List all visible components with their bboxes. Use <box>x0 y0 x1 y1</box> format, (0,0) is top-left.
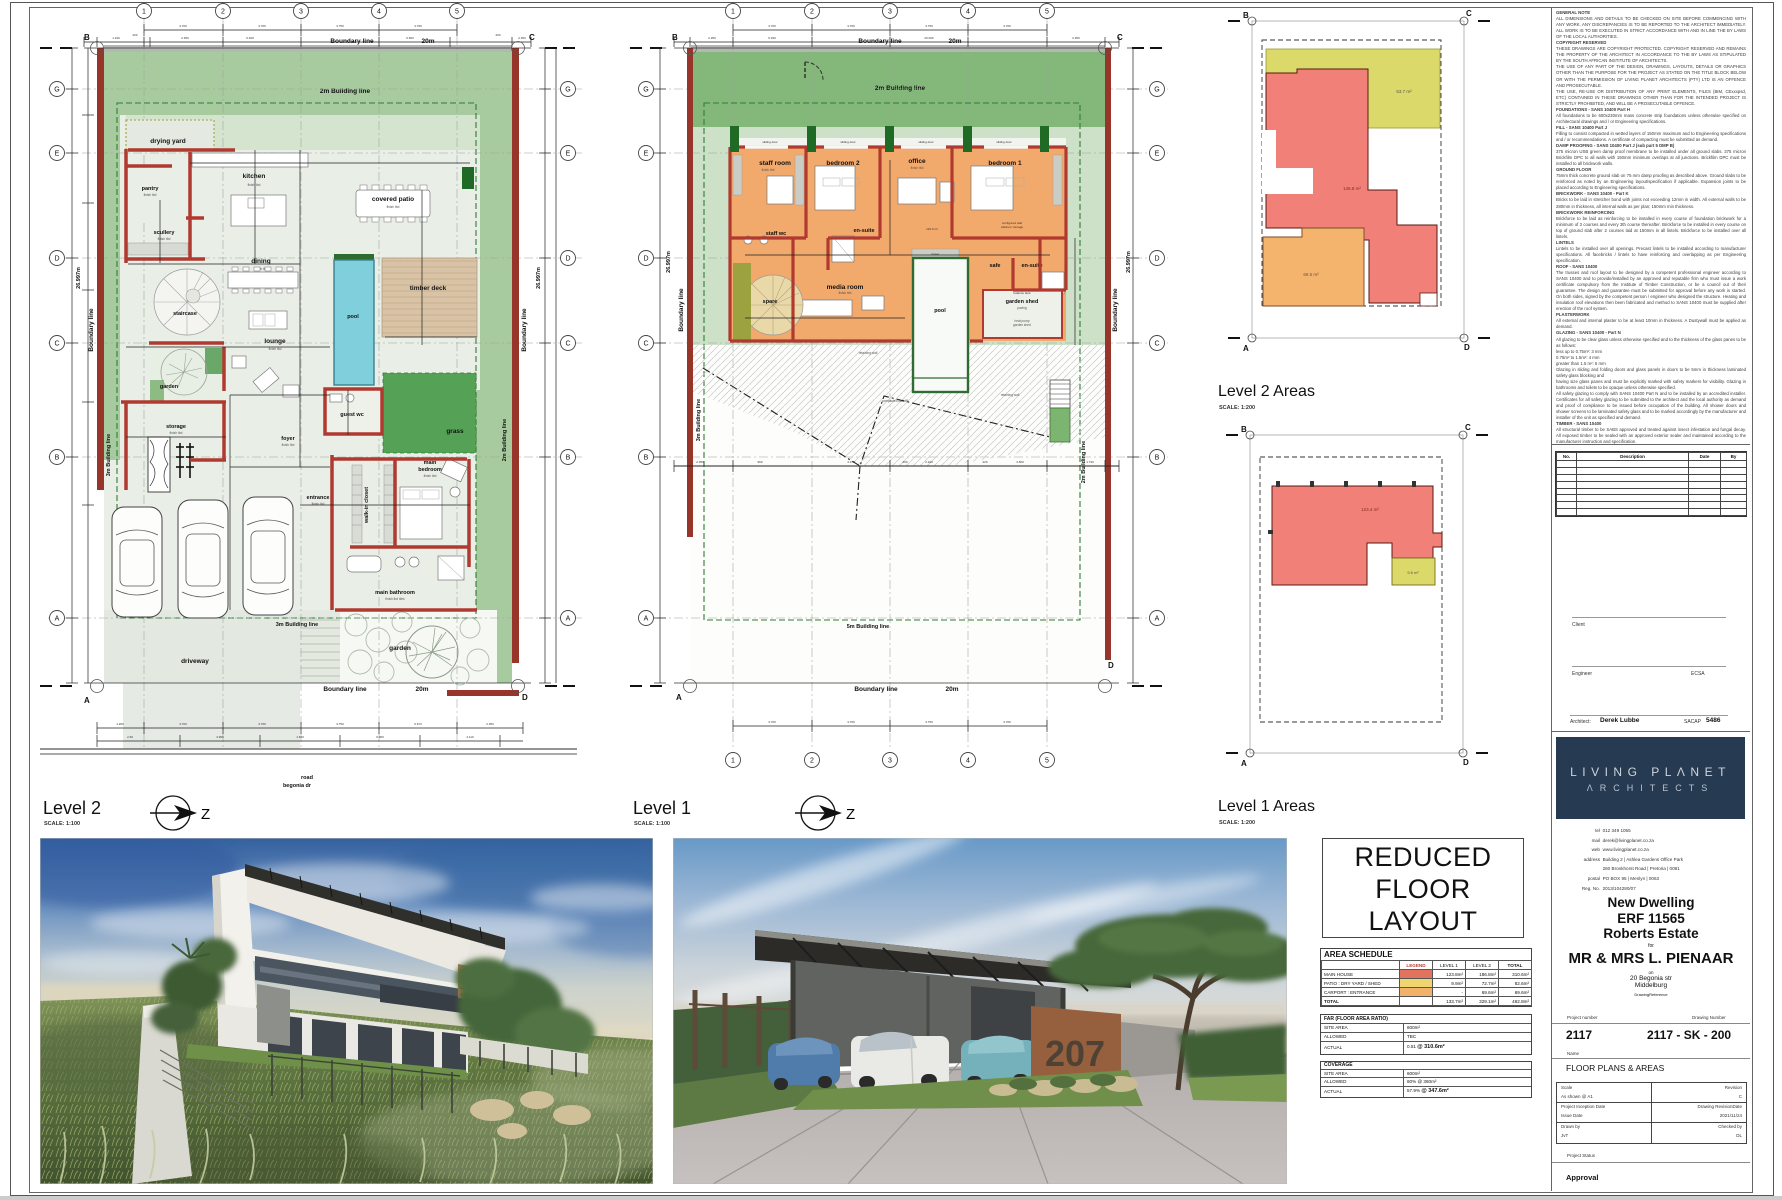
svg-text:123.3 m²: 123.3 m² <box>926 227 938 231</box>
svg-text:3.750: 3.750 <box>925 24 933 28</box>
svg-text:D: D <box>1154 256 1159 263</box>
svg-text:A: A <box>566 616 571 623</box>
svg-text:3.700: 3.700 <box>768 24 776 28</box>
svg-text:D: D <box>565 256 570 263</box>
svg-text:sliding door: sliding door <box>918 140 933 144</box>
svg-text:207: 207 <box>1045 1033 1105 1074</box>
svg-text:finish tbd: finish tbd <box>144 193 157 197</box>
svg-text:1: 1 <box>731 758 735 765</box>
svg-text:Boundary line: Boundary line <box>854 686 898 693</box>
svg-text:200: 200 <box>495 33 500 37</box>
svg-text:5: 5 <box>1045 9 1049 16</box>
svg-text:B: B <box>1243 11 1249 20</box>
svg-text:9.6 m²: 9.6 m² <box>1407 570 1419 575</box>
svg-text:6.960: 6.960 <box>376 735 384 739</box>
svg-text:finish tbd: finish tbd <box>387 205 400 209</box>
svg-text:3.766: 3.766 <box>847 720 855 724</box>
svg-text:1.730: 1.730 <box>1086 460 1094 464</box>
svg-text:B: B <box>84 33 90 42</box>
svg-text:finish tbd: finish tbd <box>312 502 325 506</box>
svg-text:2.350: 2.350 <box>181 36 189 40</box>
svg-text:3m Building line: 3m Building line <box>696 399 702 441</box>
svg-text:2.350: 2.350 <box>1072 36 1080 40</box>
svg-text:4: 4 <box>966 9 970 16</box>
svg-text:220: 220 <box>982 460 987 464</box>
svg-text:main bathroom: main bathroom <box>375 590 415 596</box>
svg-text:1.260: 1.260 <box>116 722 124 726</box>
svg-text:foyer: foyer <box>281 436 295 442</box>
svg-text:3.766: 3.766 <box>258 722 266 726</box>
svg-text:Boundary line: Boundary line <box>678 288 685 332</box>
svg-text:B: B <box>672 33 678 42</box>
svg-text:B: B <box>1155 455 1160 462</box>
svg-text:200: 200 <box>132 33 137 37</box>
svg-text:sliding door: sliding door <box>840 140 855 144</box>
svg-text:driveway: driveway <box>181 658 209 665</box>
svg-text:2: 2 <box>810 758 814 765</box>
svg-text:20m: 20m <box>945 686 958 693</box>
svg-text:retaining wall: retaining wall <box>859 351 878 355</box>
svg-text:E: E <box>1155 151 1160 158</box>
svg-text:4.110: 4.110 <box>466 735 474 739</box>
svg-text:2.60: 2.60 <box>127 735 133 739</box>
svg-text:Boundary line: Boundary line <box>330 38 374 45</box>
svg-text:3m Building line: 3m Building line <box>106 434 112 476</box>
svg-text:entrance: entrance <box>307 495 330 501</box>
svg-text:finish tbd tiles: finish tbd tiles <box>385 597 405 601</box>
svg-text:G: G <box>1154 87 1159 94</box>
svg-text:begonia dr: begonia dr <box>283 783 312 789</box>
svg-text:finish tbd: finish tbd <box>158 237 171 241</box>
svg-text:1.340: 1.340 <box>112 36 120 40</box>
svg-text:6.673: 6.673 <box>414 722 422 726</box>
svg-text:1: 1 <box>731 9 735 16</box>
svg-text:garden: garden <box>389 645 411 652</box>
svg-text:finish tbd: finish tbd <box>839 291 852 295</box>
svg-text:compacted backfill: compacted backfill <box>882 399 909 403</box>
svg-text:A: A <box>644 616 649 623</box>
svg-text:5m Building line: 5m Building line <box>847 624 889 630</box>
svg-text:3.750: 3.750 <box>336 24 344 28</box>
svg-text:2.350: 2.350 <box>518 36 526 40</box>
svg-text:1.600: 1.600 <box>296 735 304 739</box>
svg-text:Z: Z <box>201 806 210 823</box>
svg-text:sliding door: sliding door <box>996 140 1011 144</box>
svg-text:B: B <box>566 455 571 462</box>
svg-text:1: 1 <box>142 9 146 16</box>
svg-text:finish tbd: finish tbd <box>762 168 775 172</box>
svg-text:200: 200 <box>902 460 907 464</box>
svg-text:B: B <box>644 455 649 462</box>
svg-text:960: 960 <box>757 460 762 464</box>
svg-text:2: 2 <box>221 9 225 16</box>
svg-text:Z: Z <box>846 806 855 823</box>
svg-text:G: G <box>565 87 570 94</box>
svg-text:E: E <box>55 151 60 158</box>
svg-text:timber deck: timber deck <box>410 285 447 292</box>
svg-text:5: 5 <box>1045 758 1049 765</box>
svg-text:lounge: lounge <box>264 338 286 345</box>
svg-text:26.997m: 26.997m <box>666 251 672 273</box>
svg-text:2.350: 2.350 <box>696 460 704 464</box>
svg-text:guest wc: guest wc <box>340 412 364 418</box>
svg-text:staff wc: staff wc <box>766 231 786 237</box>
svg-text:finish tbd: finish tbd <box>424 474 437 478</box>
svg-text:A: A <box>1243 344 1249 353</box>
svg-text:garden: garden <box>160 384 179 390</box>
svg-text:C: C <box>1154 341 1159 348</box>
svg-text:B: B <box>55 455 60 462</box>
svg-text:C: C <box>1465 423 1471 432</box>
svg-text:3.750: 3.750 <box>336 722 344 726</box>
svg-text:6.940: 6.940 <box>768 36 776 40</box>
svg-text:G: G <box>54 87 59 94</box>
svg-text:finish tbd: finish tbd <box>911 166 924 170</box>
svg-text:146.8 m²: 146.8 m² <box>1343 186 1361 191</box>
svg-text:garden shed: garden shed <box>1013 323 1031 327</box>
svg-text:A: A <box>1155 616 1160 623</box>
svg-text:walk-in closet: walk-in closet <box>364 487 370 524</box>
svg-text:2.240: 2.240 <box>925 460 933 464</box>
svg-text:20m: 20m <box>421 38 434 45</box>
svg-text:C: C <box>1117 33 1123 42</box>
svg-text:bedroom: bedroom <box>418 467 442 473</box>
svg-text:6.660: 6.660 <box>406 36 414 40</box>
svg-text:3.766: 3.766 <box>1003 720 1011 724</box>
svg-text:retaining wall: retaining wall <box>1001 393 1020 397</box>
svg-text:3: 3 <box>888 9 892 16</box>
svg-text:Boundary line: Boundary line <box>858 38 902 45</box>
svg-text:garden shed: garden shed <box>1006 299 1039 305</box>
svg-text:G: G <box>643 87 648 94</box>
svg-text:20m: 20m <box>415 686 428 693</box>
svg-text:kitchen: kitchen <box>243 173 266 180</box>
svg-text:Boundary line: Boundary line <box>88 308 95 352</box>
svg-text:staircase: staircase <box>173 311 197 317</box>
svg-text:4.500: 4.500 <box>1016 460 1024 464</box>
svg-text:pool: pool <box>934 308 946 314</box>
svg-text:A: A <box>55 616 60 623</box>
svg-text:C: C <box>565 341 570 348</box>
svg-text:20.000: 20.000 <box>924 36 934 40</box>
svg-text:Boundary line: Boundary line <box>1112 288 1119 332</box>
svg-text:spare: spare <box>763 299 778 305</box>
svg-text:3: 3 <box>888 758 892 765</box>
svg-text:finish tbd: finish tbd <box>170 431 183 435</box>
svg-text:safe: safe <box>989 263 1000 269</box>
svg-text:4: 4 <box>966 758 970 765</box>
svg-text:2: 2 <box>810 9 814 16</box>
svg-text:4.990: 4.990 <box>216 735 224 739</box>
svg-text:3.700: 3.700 <box>768 720 776 724</box>
svg-text:media room: media room <box>827 284 864 291</box>
svg-text:office: office <box>908 158 926 165</box>
svg-text:closet: closet <box>931 252 939 256</box>
svg-text:D: D <box>1464 343 1470 352</box>
svg-text:3: 3 <box>299 9 303 16</box>
svg-text:D: D <box>54 256 59 263</box>
svg-text:scullery: scullery <box>154 230 176 236</box>
svg-text:covered patio: covered patio <box>372 196 414 203</box>
svg-text:staff room: staff room <box>759 160 791 167</box>
svg-text:3.700: 3.700 <box>179 24 187 28</box>
svg-text:E: E <box>566 151 571 158</box>
svg-text:3.766: 3.766 <box>847 24 855 28</box>
svg-text:3.766: 3.766 <box>1003 24 1011 28</box>
svg-text:storage: storage <box>166 424 186 430</box>
svg-text:53.7 m²: 53.7 m² <box>1396 89 1412 94</box>
svg-text:grass: grass <box>446 428 464 435</box>
svg-text:drying yard: drying yard <box>150 138 185 145</box>
svg-text:B: B <box>1241 425 1247 434</box>
svg-text:finish tbd: finish tbd <box>282 443 295 447</box>
svg-text:cabinet / storage: cabinet / storage <box>1001 225 1024 229</box>
svg-text:D: D <box>643 256 648 263</box>
svg-text:4: 4 <box>377 9 381 16</box>
svg-text:D: D <box>522 693 528 702</box>
svg-text:A: A <box>84 696 90 705</box>
svg-text:2.350: 2.350 <box>486 722 494 726</box>
svg-text:69.5 m²: 69.5 m² <box>1303 272 1319 277</box>
svg-text:26.997m: 26.997m <box>536 267 542 289</box>
svg-text:sliding door: sliding door <box>762 140 777 144</box>
svg-text:3.750: 3.750 <box>925 720 933 724</box>
svg-text:E: E <box>644 151 649 158</box>
svg-text:2m Building line: 2m Building line <box>1081 441 1087 483</box>
svg-text:3.700: 3.700 <box>179 722 187 726</box>
svg-text:C: C <box>54 341 59 348</box>
svg-text:paving: paving <box>1017 306 1027 310</box>
svg-text:3.766: 3.766 <box>414 24 422 28</box>
svg-text:C: C <box>1466 9 1472 18</box>
svg-text:D: D <box>1463 758 1469 767</box>
svg-text:123.4 m²: 123.4 m² <box>1361 507 1379 512</box>
svg-text:26.997m: 26.997m <box>1126 251 1132 273</box>
svg-text:3.766: 3.766 <box>258 24 266 28</box>
svg-text:20m: 20m <box>948 38 961 45</box>
svg-text:2.350: 2.350 <box>708 36 716 40</box>
svg-text:pantry: pantry <box>142 186 160 192</box>
svg-text:C: C <box>643 341 648 348</box>
svg-text:26.997m: 26.997m <box>76 267 82 289</box>
svg-text:finish tbd: finish tbd <box>248 183 261 187</box>
svg-text:6.940: 6.940 <box>246 36 254 40</box>
svg-text:pool: pool <box>347 314 359 320</box>
svg-text:2m Building line: 2m Building line <box>875 85 926 92</box>
svg-text:finish tbd: finish tbd <box>269 347 282 351</box>
svg-text:D: D <box>1108 661 1114 670</box>
svg-text:en-suite: en-suite <box>853 228 874 234</box>
svg-text:A: A <box>676 693 682 702</box>
svg-text:Boundary line: Boundary line <box>323 686 367 693</box>
svg-text:5: 5 <box>455 9 459 16</box>
svg-text:road: road <box>301 775 313 781</box>
svg-text:Boundary line: Boundary line <box>521 308 528 352</box>
svg-text:main: main <box>424 460 437 466</box>
svg-text:3m Building line: 3m Building line <box>276 622 318 628</box>
svg-text:2m Building line: 2m Building line <box>502 419 508 461</box>
svg-text:A: A <box>1241 759 1247 768</box>
svg-text:4.370: 4.370 <box>847 460 855 464</box>
svg-text:C: C <box>529 33 535 42</box>
